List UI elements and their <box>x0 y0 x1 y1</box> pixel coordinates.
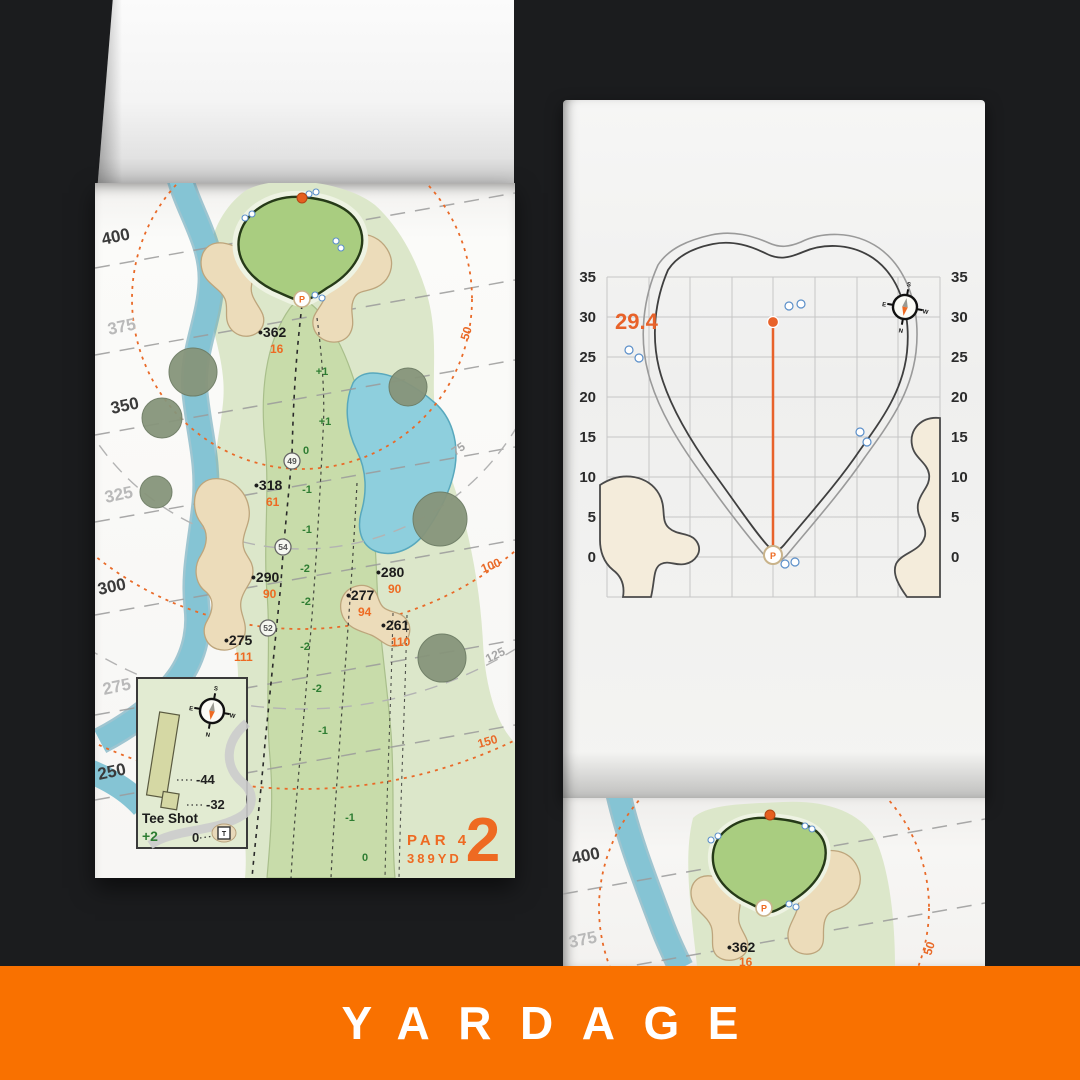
svg-text:•362: •362 <box>258 324 286 340</box>
svg-text:25: 25 <box>579 349 596 366</box>
svg-text:30: 30 <box>579 309 596 326</box>
svg-text:0: 0 <box>362 852 368 864</box>
svg-text:15: 15 <box>951 429 968 446</box>
svg-text:275: 275 <box>101 674 133 698</box>
waypoint-label: 54 <box>278 542 288 552</box>
svg-text:350: 350 <box>109 393 141 417</box>
tee-marker: T <box>222 831 227 838</box>
river <box>618 798 681 966</box>
svg-text:0: 0 <box>951 549 959 566</box>
svg-text:375: 375 <box>106 314 138 338</box>
next-hole-page: P 400 375 •362 16 50 <box>563 798 985 966</box>
svg-text:50: 50 <box>458 325 476 342</box>
yardage-book-mockup: 49 54 52 +1 +1 0 -1 -1 -2 -2 -2 -2 -1 -1… <box>0 0 1080 1080</box>
svg-text:-1: -1 <box>302 484 312 496</box>
green-contours <box>643 233 917 562</box>
pin-marker: P <box>294 291 310 307</box>
svg-text:+1: +1 <box>316 366 329 378</box>
svg-text:+1: +1 <box>319 416 332 428</box>
svg-text:•318: •318 <box>254 477 282 493</box>
waypoint-label: 52 <box>263 623 273 633</box>
svg-text:15: 15 <box>579 429 596 446</box>
banner-title: YARDAGE <box>313 996 767 1050</box>
svg-text:•280: •280 <box>376 564 404 580</box>
svg-text:•277: •277 <box>346 587 374 603</box>
svg-text:0: 0 <box>588 549 596 566</box>
svg-text:375: 375 <box>567 927 599 951</box>
svg-text:S: S <box>906 282 911 289</box>
tee-shot-score: +2 <box>142 828 158 844</box>
svg-text:35: 35 <box>951 269 968 286</box>
waypoint-label: 49 <box>287 456 297 466</box>
par-label: PAR 4 <box>407 832 470 849</box>
svg-text:325: 325 <box>103 482 135 506</box>
svg-text:111: 111 <box>234 650 253 664</box>
svg-text:94: 94 <box>358 605 372 619</box>
svg-text:-2: -2 <box>300 641 310 653</box>
svg-text:W: W <box>922 309 929 316</box>
svg-text:90: 90 <box>388 582 402 596</box>
svg-text:61: 61 <box>266 495 280 509</box>
svg-text:125: 125 <box>483 644 507 666</box>
yardage-banner: YARDAGE <box>0 966 1080 1080</box>
svg-text:-1: -1 <box>345 812 355 824</box>
svg-text:10: 10 <box>951 469 968 486</box>
tee-zero-label: 0 <box>192 830 199 845</box>
svg-text:5: 5 <box>588 509 596 526</box>
svg-text:•261: •261 <box>381 617 409 633</box>
green-front-dot <box>297 193 307 203</box>
green-chart: P 29.4 35 30 25 20 15 10 5 0 <box>563 100 985 798</box>
svg-text:400: 400 <box>570 843 602 867</box>
hole-map: 49 54 52 +1 +1 0 -1 -1 -2 -2 -2 -2 -1 -1… <box>95 183 515 878</box>
next-hole-map: P 400 375 •362 16 50 <box>563 798 985 966</box>
margin-labels: 400 375 350 325 300 275 250 <box>96 224 141 783</box>
svg-text:16: 16 <box>270 342 284 356</box>
svg-text:-2: -2 <box>300 563 310 575</box>
svg-text:-1: -1 <box>302 524 312 536</box>
pin-marker-label: P <box>770 551 776 561</box>
hole-map-page: 49 54 52 +1 +1 0 -1 -1 -2 -2 -2 -2 -1 -1… <box>95 183 515 878</box>
carry-left-label: -44 <box>196 772 216 787</box>
axis-ticks-right: 35 30 25 20 15 10 5 0 <box>951 269 968 566</box>
svg-text:100: 100 <box>479 555 503 576</box>
arc-label: 50 <box>921 940 939 957</box>
green-depth-value: 29.4 <box>615 309 659 334</box>
svg-text:0: 0 <box>303 445 309 457</box>
svg-text:•290: •290 <box>251 569 279 585</box>
margin-labels: 400 375 <box>567 843 602 951</box>
inset-title: Tee Shot <box>142 811 199 826</box>
svg-text:5: 5 <box>951 509 959 526</box>
pin-marker: P <box>756 900 772 916</box>
svg-text:20: 20 <box>951 389 968 406</box>
svg-text:-2: -2 <box>301 596 311 608</box>
yardage-label: •362 <box>727 939 755 955</box>
carry-right-label: -32 <box>206 797 225 812</box>
chart-bunkers <box>600 418 940 597</box>
green-front-dot <box>765 810 775 820</box>
svg-text:90: 90 <box>263 587 277 601</box>
svg-text:35: 35 <box>579 269 596 286</box>
svg-text:400: 400 <box>100 224 132 248</box>
flipped-page <box>96 0 514 184</box>
svg-text:E: E <box>881 302 886 309</box>
yardage-pin-label: 16 <box>739 955 753 966</box>
green-detail-page: P 29.4 35 30 25 20 15 10 5 0 <box>563 100 985 798</box>
axis-ticks-left: 35 30 25 20 15 10 5 0 <box>579 269 596 566</box>
compass-icon: S N W E <box>877 278 933 338</box>
svg-text:P: P <box>761 904 767 914</box>
yards-label: 389YD <box>407 851 462 866</box>
svg-text:25: 25 <box>951 349 968 366</box>
tee-shot-inset: -44 -32 Tee Shot +2 0 T <box>137 678 251 848</box>
svg-text:•275: •275 <box>224 632 252 648</box>
svg-text:N: N <box>898 328 903 335</box>
svg-text:-1: -1 <box>318 725 328 737</box>
hole-number: 2 <box>466 806 500 875</box>
svg-text:10: 10 <box>579 469 596 486</box>
svg-text:300: 300 <box>96 574 128 598</box>
svg-text:-2: -2 <box>312 683 322 695</box>
svg-text:P: P <box>299 295 305 305</box>
svg-text:110: 110 <box>391 635 411 649</box>
svg-text:30: 30 <box>951 309 968 326</box>
svg-text:20: 20 <box>579 389 596 406</box>
